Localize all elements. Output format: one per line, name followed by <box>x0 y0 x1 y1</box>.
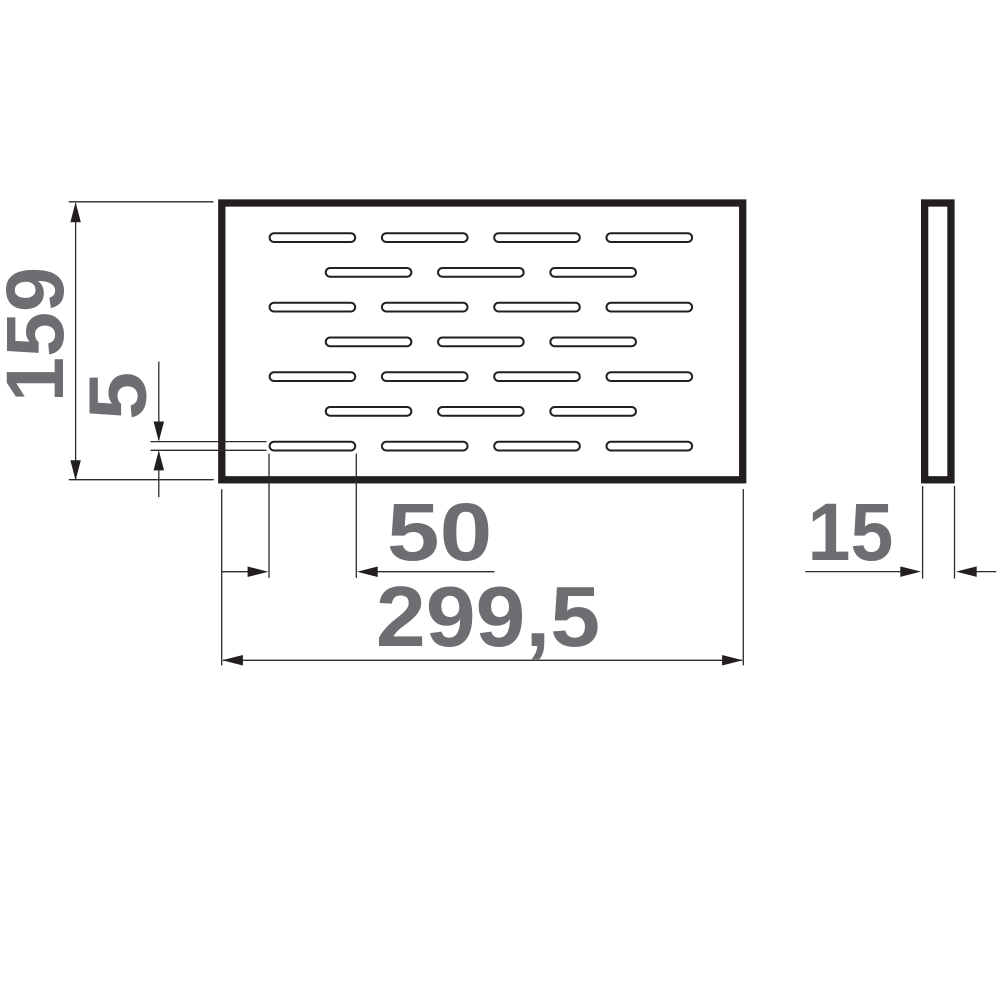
svg-text:299,5: 299,5 <box>376 570 600 665</box>
svg-text:50: 50 <box>387 487 492 578</box>
svg-text:159: 159 <box>0 267 81 402</box>
svg-text:5: 5 <box>73 372 164 420</box>
svg-text:15: 15 <box>807 487 893 578</box>
